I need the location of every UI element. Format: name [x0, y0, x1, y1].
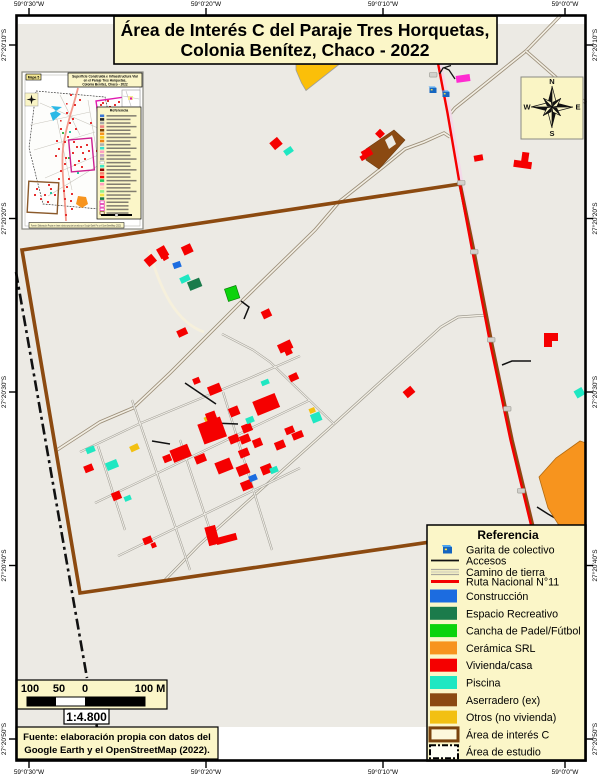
svg-text:Colonia Benítez, Chaco - 2022: Colonia Benítez, Chaco - 2022	[181, 40, 430, 60]
svg-text:Área de estudio: Área de estudio	[466, 746, 541, 759]
svg-text:27°20'30"S: 27°20'30"S	[0, 375, 8, 408]
svg-text:N: N	[549, 77, 554, 86]
svg-text:Fuente: elaboración propia con: Fuente: elaboración propia con datos del	[23, 732, 211, 743]
svg-text:Aserradero (ex): Aserradero (ex)	[466, 695, 540, 707]
svg-text:Cerámica SRL: Cerámica SRL	[466, 643, 536, 655]
svg-text:27°20'20"S: 27°20'20"S	[0, 202, 8, 235]
svg-text:27°20'40"S: 27°20'40"S	[0, 549, 8, 582]
svg-text:Otros (no vivienda): Otros (no vivienda)	[466, 712, 556, 724]
svg-text:59°0'10"W: 59°0'10"W	[368, 0, 399, 8]
svg-text:27°20'20"S: 27°20'20"S	[591, 202, 599, 235]
svg-text:Accesos: Accesos	[466, 556, 506, 568]
svg-text:Mapa 5: Mapa 5	[28, 76, 40, 80]
svg-text:Vivienda/casa: Vivienda/casa	[466, 660, 532, 672]
svg-text:27°20'40"S: 27°20'40"S	[591, 549, 599, 582]
svg-text:100 M: 100 M	[135, 683, 166, 695]
svg-text:27°20'30"S: 27°20'30"S	[591, 375, 599, 408]
svg-text:Área de interés C: Área de interés C	[466, 728, 549, 741]
svg-text:Fuente: Elaboración Propia en: Fuente: Elaboración Propia en base a dat…	[31, 224, 121, 228]
svg-text:27°20'50"S: 27°20'50"S	[591, 722, 599, 755]
svg-text:Ruta Nacional N°11: Ruta Nacional N°11	[466, 577, 559, 589]
svg-text:27°20'10"S: 27°20'10"S	[591, 28, 599, 61]
svg-text:E: E	[575, 103, 580, 112]
svg-text:59°0'30"W: 59°0'30"W	[14, 0, 45, 8]
svg-text:Piscina: Piscina	[466, 678, 501, 690]
svg-text:S: S	[549, 129, 554, 138]
svg-text:0: 0	[82, 683, 88, 695]
svg-text:59°0'10"W: 59°0'10"W	[368, 768, 399, 776]
svg-text:1:4.800: 1:4.800	[66, 710, 107, 724]
svg-text:Espacio Recreativo: Espacio Recreativo	[466, 608, 558, 620]
svg-text:100: 100	[21, 683, 39, 695]
svg-text:Colonia Benítez, Chaco - 2022: Colonia Benítez, Chaco - 2022	[82, 83, 128, 87]
svg-text:Área de Interés C del Paraje T: Área de Interés C del Paraje Tres Horque…	[121, 19, 490, 40]
svg-text:50: 50	[53, 683, 65, 695]
svg-text:59°0'0"W: 59°0'0"W	[552, 768, 580, 776]
svg-text:Referencia: Referencia	[110, 109, 129, 113]
svg-text:27°20'10"S: 27°20'10"S	[0, 28, 8, 61]
svg-text:27°20'50"S: 27°20'50"S	[0, 722, 8, 755]
svg-text:Cancha de Padel/Fútbol: Cancha de Padel/Fútbol	[466, 626, 581, 638]
svg-text:Referencia: Referencia	[477, 528, 539, 542]
svg-text:59°0'0"W: 59°0'0"W	[552, 0, 580, 8]
svg-text:Google Earth y el OpenStreetMa: Google Earth y el OpenStreetMap (2022).	[24, 745, 210, 756]
svg-text:59°0'20"W: 59°0'20"W	[191, 768, 222, 776]
svg-text:59°0'30"W: 59°0'30"W	[14, 768, 45, 776]
svg-text:W: W	[523, 103, 531, 112]
svg-text:Construcción: Construcción	[466, 591, 528, 603]
svg-text:59°0'20"W: 59°0'20"W	[191, 0, 222, 8]
